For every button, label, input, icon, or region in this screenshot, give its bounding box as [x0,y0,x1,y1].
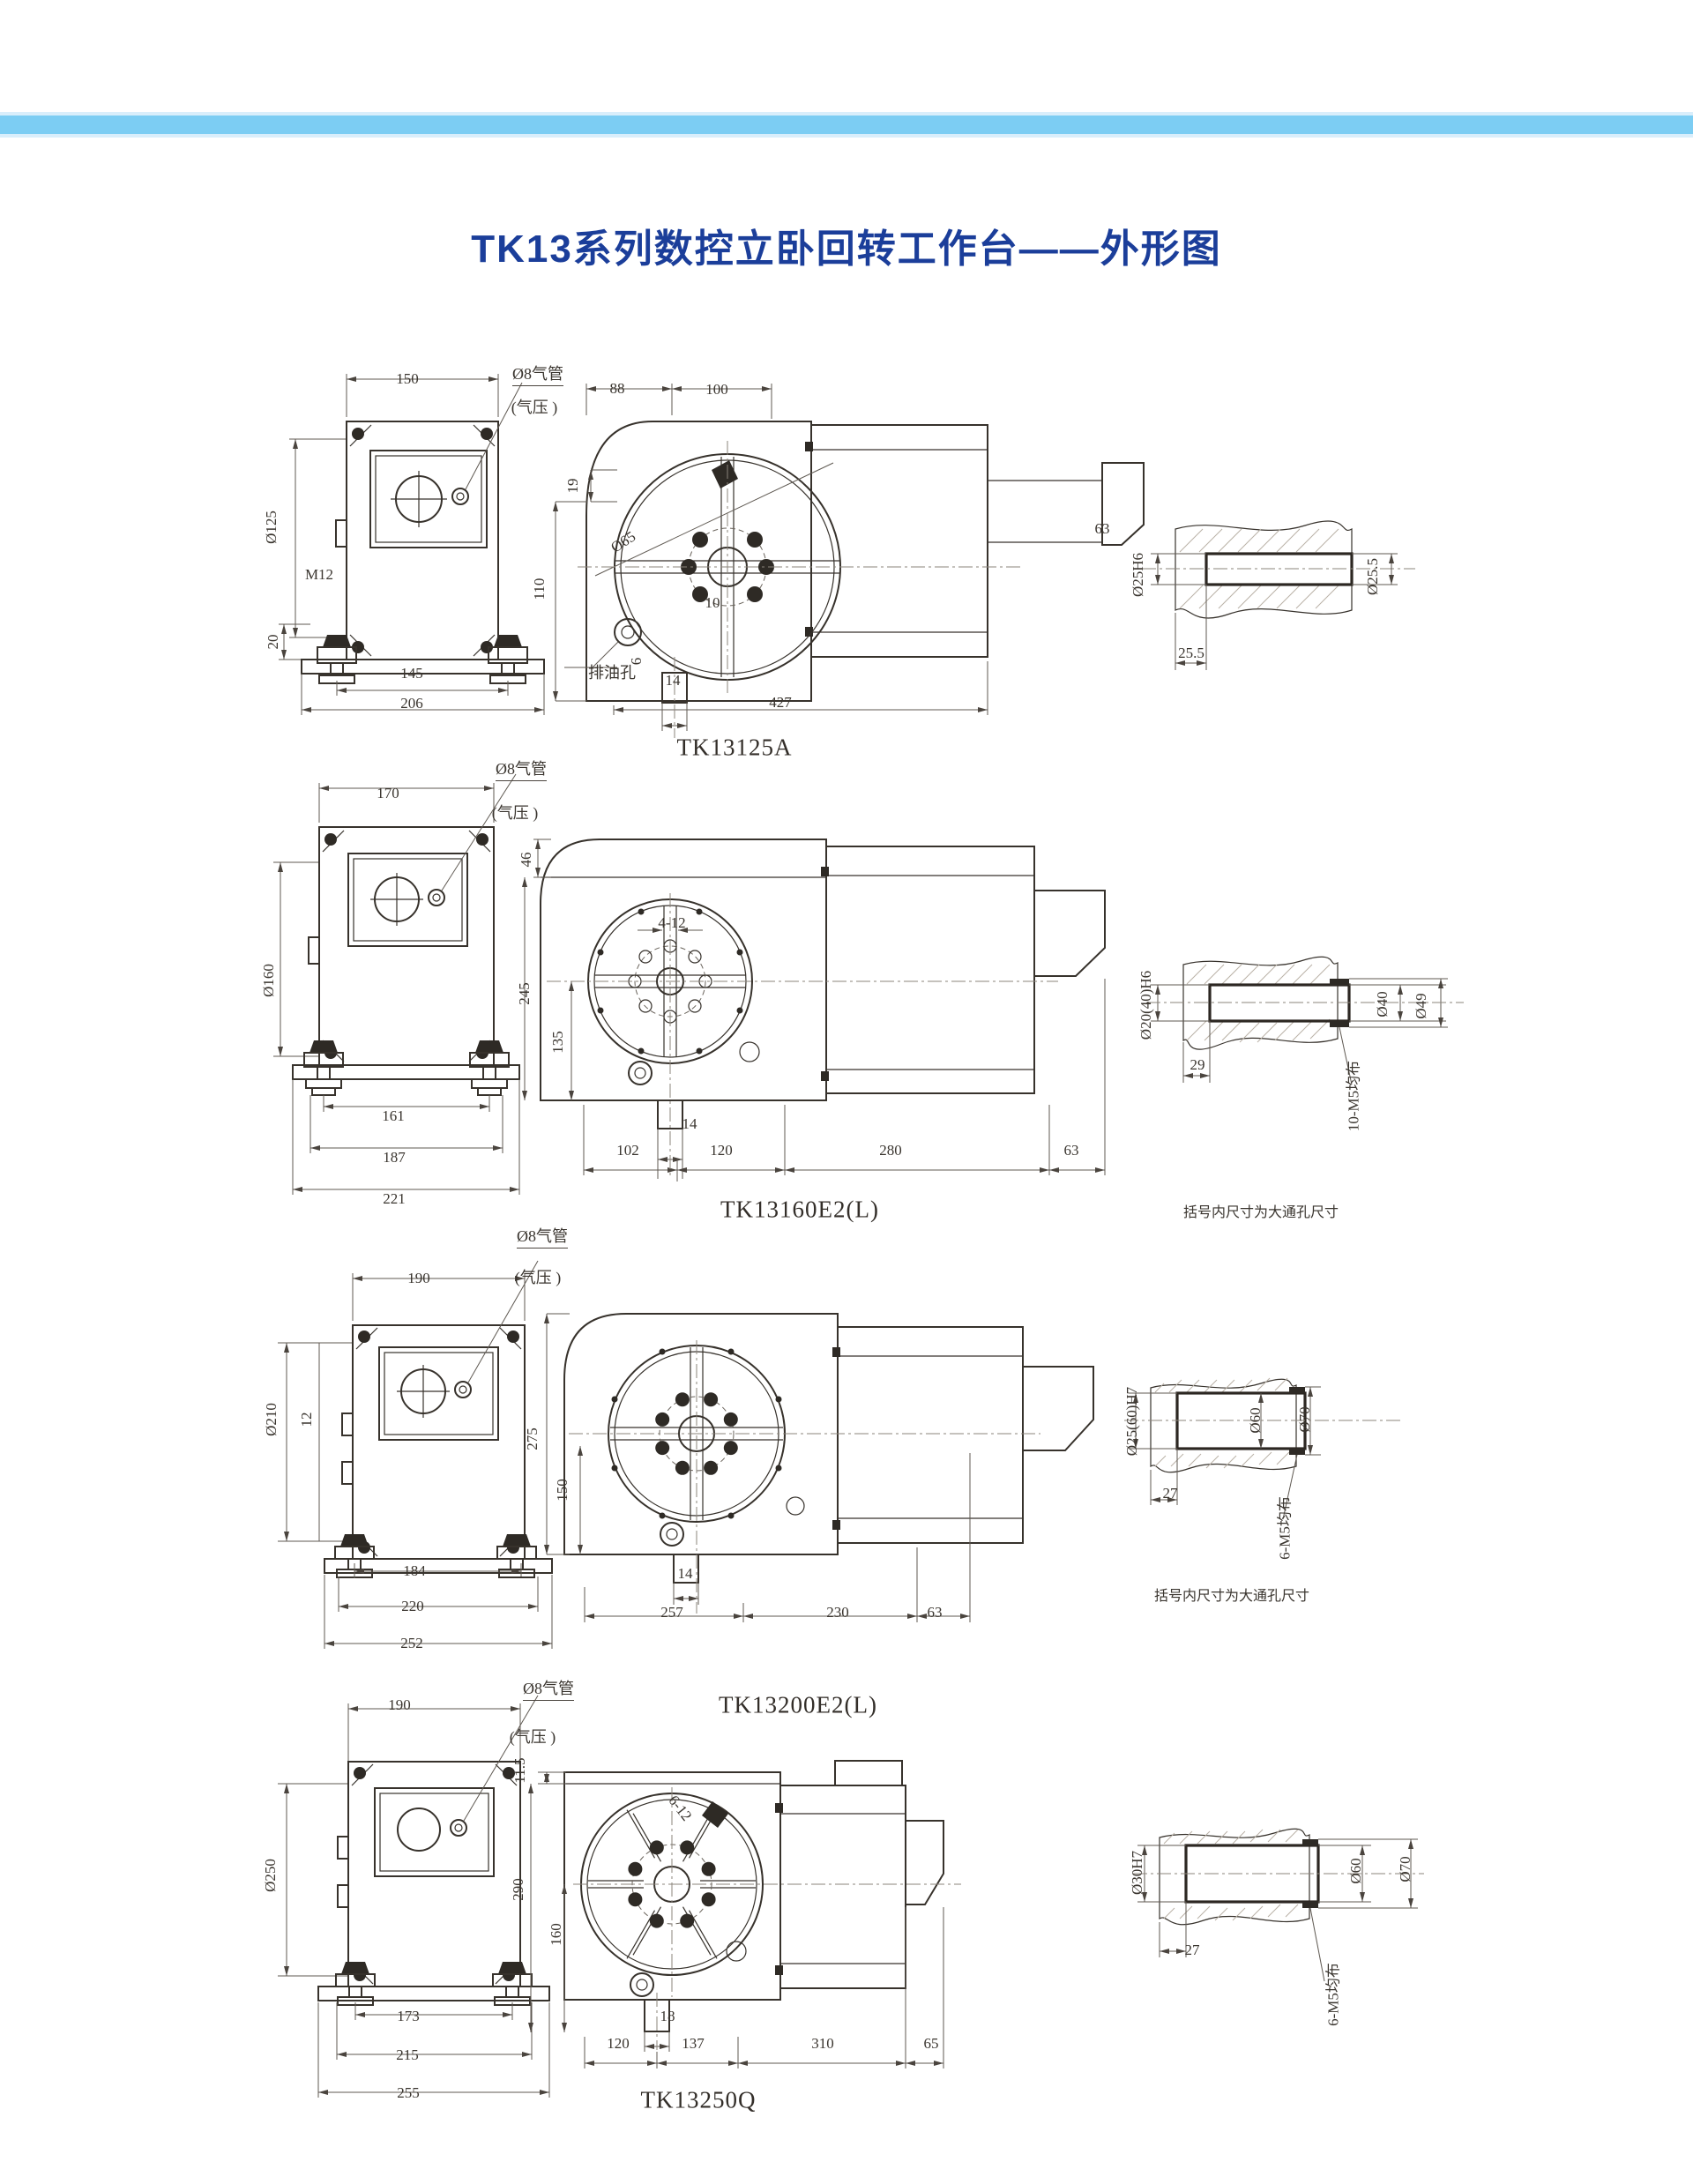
dim-label: 220 [401,1598,424,1615]
dim-label: 245 [516,982,533,1005]
shaft-detail-drawing-1 [1129,511,1428,688]
dim-label: 65 [924,2035,939,2053]
dim-label: 161 [382,1107,405,1125]
side-view-drawing-3 [511,1278,1111,1666]
dim-label: 427 [769,694,792,712]
top-accent-bar [0,112,1693,138]
dim-label: 190 [388,1696,411,1714]
model-label: TK13200E2(L) [719,1692,877,1719]
dim-label: 120 [607,2035,630,2053]
dim-label: 6-M5均布 [1321,1963,1343,2026]
dim-label: 27 [1163,1485,1178,1502]
dim-label: 255 [397,2084,420,2102]
dim-label: Ø25H6 [1130,553,1147,597]
dim-label: 120 [710,1142,733,1159]
dim-label: 173 [397,2008,420,2025]
dim-label: 137 [682,2035,705,2053]
dim-label: 230 [826,1604,849,1621]
dim-label: 6 [628,658,645,666]
dim-label: Ø30H7 [1129,1851,1146,1895]
dim-label: 110 [531,578,548,600]
dim-label: 10 [705,594,720,612]
dim-label: 135 [549,1031,567,1054]
dim-label: 18 [660,2008,675,2025]
dim-label: 19 [564,479,582,494]
shaft-detail-drawing-4 [1129,1821,1428,2041]
dim-label: 14 [682,1115,697,1133]
dim-label: 27 [1185,1942,1200,1959]
dim-label: 88 [610,380,625,398]
page-title: TK13系列数控立卧回转工作台——外形图 [0,217,1693,273]
dim-label: 14 [666,672,681,689]
dim-label: Ø70 [1397,1856,1414,1882]
dim-label: 280 [879,1142,902,1159]
dim-label: 10-M5均布 [1341,1061,1363,1131]
dim-label: 63 [1064,1142,1079,1159]
dim-label: Ø25.5 [1364,558,1382,595]
dim-label: 46 [518,853,535,868]
model-label: TK13250Q [641,2087,757,2114]
catalog-page: TK13系列数控立卧回转工作台——外形图 [0,0,1693,2184]
dim-label: 102 [616,1142,639,1159]
dim-label: 275 [524,1427,541,1450]
air-pipe-label: Ø8气管 [517,1224,568,1249]
bracket-note: 括号内尺寸为大通孔尺寸 [1154,1584,1309,1605]
dim-label: 160 [548,1923,565,1946]
side-view-drawing-1 [529,357,1164,763]
shaft-detail-drawing-2 [1137,952,1473,1155]
dim-label: 252 [400,1635,423,1652]
bracket-note: 括号内尺寸为大通孔尺寸 [1183,1200,1339,1221]
dim-label: 25.5 [1178,645,1204,662]
dim-label: Ø40 [1374,991,1391,1017]
dim-label: 187 [383,1149,406,1167]
air-pipe-label: Ø8气管 [496,757,547,781]
dim-label: 206 [400,695,423,712]
dim-label: 12 [298,1413,316,1427]
dim-label: 145 [400,665,423,682]
dim-label: 184 [403,1562,426,1580]
dim-label: Ø49 [1413,993,1430,1018]
model-label: TK13160E2(L) [720,1196,879,1224]
dim-label: 221 [383,1190,406,1208]
dim-label: Ø125 [263,511,280,544]
dim-label: Ø210 [263,1403,280,1436]
dim-label: 257 [660,1604,683,1621]
dim-label: 190 [407,1270,430,1287]
dim-label: Ø60 [1247,1407,1264,1433]
air-pipe-label: Ø8气管 [523,1676,574,1701]
dim-label: Ø250 [262,1859,280,1892]
dim-label: 4-12 [658,914,685,932]
dim-label: 290 [510,1878,527,1901]
dim-label: 14 [678,1565,693,1583]
dim-label: 63 [928,1604,943,1621]
dim-label: Ø160 [260,964,278,997]
dim-label: 11.5 [511,1757,529,1783]
dim-label: 63 [1095,520,1110,538]
dim-label: 150 [396,370,419,388]
dim-label: Ø25(60)H7 [1123,1387,1141,1456]
dim-label: 20 [265,635,282,650]
air-pressure-label: (气压 ) [510,1725,556,1748]
air-pressure-label: (气压 ) [511,395,558,418]
air-pressure-label: (气压 ) [492,801,539,824]
side-view-drawing-2 [494,789,1164,1230]
dim-label: Ø20(40)H6 [1137,971,1155,1040]
dim-label: 100 [705,381,728,399]
dim-label: M12 [305,566,333,584]
dim-label: 150 [554,1479,571,1502]
dim-label: 170 [377,785,399,802]
dim-label: 310 [811,2035,834,2053]
dim-label: 29 [1190,1056,1205,1074]
air-pipe-label: Ø8气管 [512,362,563,386]
model-label: TK13125A [677,734,793,762]
air-pressure-label: (气压 ) [515,1265,562,1288]
dim-label: Ø60 [1347,1858,1365,1883]
dim-label: 215 [396,2046,419,2064]
dim-label: Ø70 [1296,1406,1314,1432]
dim-label: 6-M5均布 [1272,1496,1294,1560]
